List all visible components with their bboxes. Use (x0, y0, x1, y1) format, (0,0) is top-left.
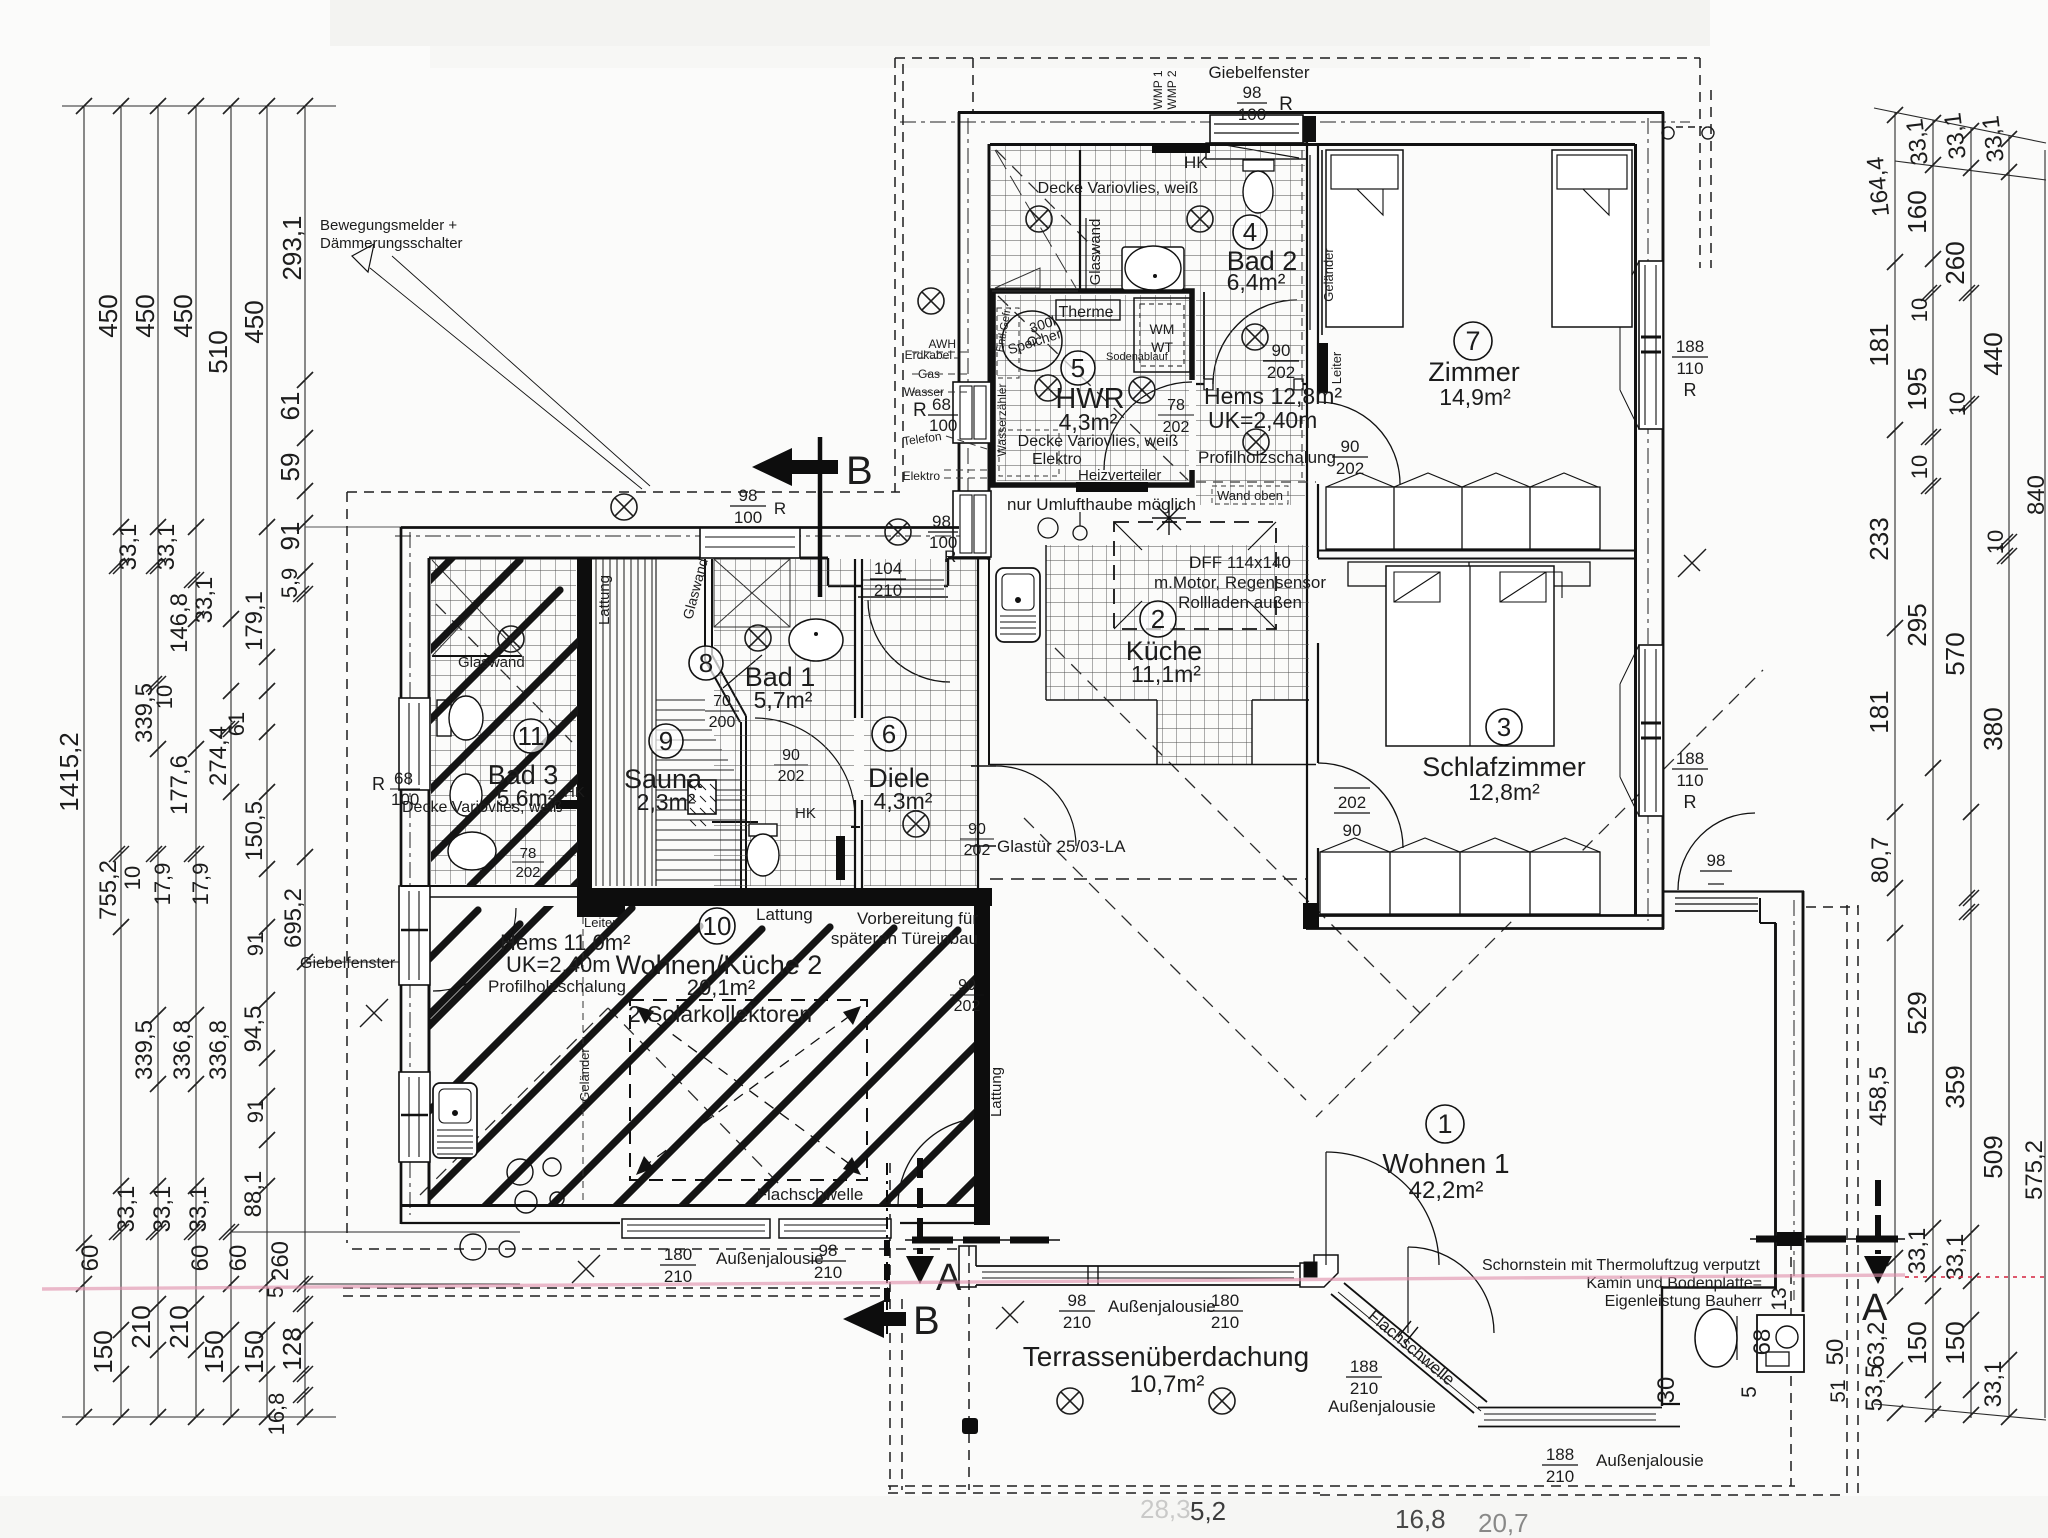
svg-text:WMP 2: WMP 2 (1165, 70, 1179, 109)
svg-text:380: 380 (1978, 707, 2008, 750)
svg-text:33,1: 33,1 (1904, 1228, 1931, 1275)
svg-text:450: 450 (168, 294, 198, 337)
svg-text:Außenjalousie: Außenjalousie (1108, 1297, 1216, 1316)
svg-text:210: 210 (874, 581, 902, 600)
svg-text:2 Solarkollektoren: 2 Solarkollektoren (628, 1001, 812, 1027)
svg-text:150: 150 (1940, 1321, 1970, 1364)
svg-text:88,1: 88,1 (240, 1171, 267, 1218)
svg-text:200: 200 (709, 714, 736, 731)
svg-text:A: A (936, 1257, 962, 1299)
svg-text:Lattung: Lattung (988, 1067, 1005, 1117)
svg-text:11,1m²: 11,1m² (1131, 661, 1201, 687)
svg-text:60: 60 (77, 1245, 104, 1272)
svg-text:146,8: 146,8 (166, 593, 193, 653)
svg-text:Schornstein mit Thermoluftzug: Schornstein mit Thermoluftzug verputzt (1482, 1257, 1761, 1274)
svg-text:695,2: 695,2 (280, 888, 307, 948)
svg-text:33,1: 33,1 (113, 1186, 140, 1233)
svg-text:104: 104 (874, 559, 902, 578)
svg-text:Schlafzimmer: Schlafzimmer (1422, 752, 1586, 782)
svg-text:210: 210 (126, 1305, 156, 1348)
svg-text:180: 180 (1211, 1291, 1239, 1310)
svg-text:181: 181 (1864, 323, 1894, 366)
svg-text:260: 260 (1940, 241, 1970, 284)
svg-text:68: 68 (1749, 1329, 1776, 1356)
svg-text:Wasserzähler: Wasserzähler (995, 384, 1009, 457)
svg-text:10,7m²: 10,7m² (1130, 1371, 1205, 1398)
svg-text:450: 450 (239, 300, 269, 343)
svg-text:90: 90 (1272, 341, 1291, 360)
svg-text:10: 10 (120, 866, 145, 890)
svg-text:33,1: 33,1 (1939, 111, 1971, 161)
svg-text:1: 1 (1437, 1109, 1452, 1139)
svg-text:61: 61 (224, 712, 249, 736)
svg-text:Geländer: Geländer (577, 1048, 592, 1102)
svg-text:Elektro: Elektro (903, 469, 941, 483)
svg-text:20,7: 20,7 (1478, 1508, 1529, 1538)
svg-text:359: 359 (1940, 1065, 1970, 1108)
svg-text:10: 10 (1907, 298, 1932, 322)
svg-text:m.Motor, Regensensor: m.Motor, Regensensor (1154, 573, 1326, 592)
svg-text:295: 295 (1902, 603, 1932, 646)
svg-text:Außenjalousie: Außenjalousie (1328, 1397, 1436, 1416)
svg-text:755,2: 755,2 (95, 860, 122, 920)
svg-text:R: R (1684, 792, 1697, 812)
svg-text:91: 91 (275, 522, 305, 551)
svg-text:336,8: 336,8 (205, 1020, 232, 1080)
svg-text:80,7: 80,7 (1867, 837, 1894, 884)
svg-text:33,1: 33,1 (185, 1186, 212, 1233)
svg-text:180: 180 (664, 1245, 692, 1264)
svg-text:Profilholzschalung: Profilholzschalung (1198, 448, 1336, 467)
svg-text:210: 210 (164, 1305, 194, 1348)
svg-text:12,8m²: 12,8m² (1468, 779, 1540, 805)
svg-text:Außenjalousie: Außenjalousie (1596, 1451, 1704, 1470)
svg-text:510: 510 (203, 330, 233, 373)
svg-text:51: 51 (1827, 1379, 1850, 1402)
svg-text:260: 260 (267, 1241, 294, 1281)
svg-text:150: 150 (1902, 1321, 1932, 1364)
svg-text:Glaswand: Glaswand (1087, 219, 1104, 286)
svg-text:Elektro: Elektro (1032, 451, 1082, 468)
svg-text:Dämmerungsschalter: Dämmerungsschalter (320, 235, 463, 252)
svg-text:Bewegungsmelder +: Bewegungsmelder + (320, 217, 457, 234)
svg-text:B: B (846, 449, 873, 493)
svg-text:90: 90 (782, 747, 800, 764)
svg-text:98: 98 (1707, 851, 1726, 870)
svg-text:nur Umlufthaube möglich: nur Umlufthaube möglich (1007, 495, 1196, 514)
svg-text:Heizverteiler: Heizverteiler (1078, 467, 1161, 484)
svg-text:202: 202 (515, 864, 540, 881)
svg-text:9: 9 (659, 726, 673, 756)
svg-text:6,4m²: 6,4m² (1227, 269, 1286, 295)
svg-text:339,5: 339,5 (131, 1020, 158, 1080)
svg-text:210: 210 (1063, 1313, 1091, 1332)
svg-text:59: 59 (275, 453, 305, 482)
svg-text:98: 98 (932, 512, 951, 531)
svg-text:42,2m²: 42,2m² (1409, 1177, 1484, 1204)
svg-text:293,1: 293,1 (277, 215, 307, 280)
svg-text:90: 90 (958, 977, 976, 994)
svg-text:HK: HK (564, 784, 585, 801)
svg-text:179,1: 179,1 (241, 591, 268, 651)
svg-text:R: R (913, 400, 927, 421)
svg-text:Flachschwelle: Flachschwelle (757, 1185, 864, 1204)
svg-text:10: 10 (152, 685, 177, 709)
svg-text:Terrassenüberdachung: Terrassenüberdachung (1023, 1341, 1309, 1372)
svg-text:78: 78 (520, 845, 537, 862)
svg-text:458,5: 458,5 (1865, 1066, 1892, 1126)
svg-text:11: 11 (518, 721, 545, 751)
svg-text:60: 60 (225, 1245, 252, 1272)
svg-text:5,9: 5,9 (277, 568, 302, 599)
svg-text:90: 90 (1341, 437, 1360, 456)
svg-text:94,5: 94,5 (240, 1006, 267, 1053)
svg-text:14,9m²: 14,9m² (1439, 384, 1511, 410)
svg-text:68: 68 (932, 395, 951, 414)
svg-text:202: 202 (1336, 459, 1364, 478)
svg-text:Erdkabel: Erdkabel (905, 348, 952, 362)
svg-text:840: 840 (2023, 475, 2048, 515)
svg-text:33,1: 33,1 (1942, 1234, 1969, 1281)
svg-text:5: 5 (1071, 353, 1085, 383)
svg-text:188: 188 (1546, 1445, 1574, 1464)
svg-text:150: 150 (88, 1330, 118, 1373)
svg-text:61: 61 (275, 392, 305, 421)
svg-text:195: 195 (1902, 367, 1932, 410)
svg-text:Vorbereitung für: Vorbereitung für (857, 909, 978, 928)
svg-text:110: 110 (1676, 771, 1703, 790)
svg-text:68: 68 (394, 769, 413, 788)
svg-text:7: 7 (1465, 326, 1480, 356)
svg-text:33,1: 33,1 (1977, 114, 2009, 164)
svg-text:4,3m²: 4,3m² (874, 788, 933, 814)
svg-text:Zimmer: Zimmer (1428, 357, 1519, 387)
svg-text:Glaswand: Glaswand (458, 654, 525, 671)
svg-text:70: 70 (713, 693, 731, 710)
svg-text:50: 50 (1822, 1339, 1849, 1366)
svg-text:Decke Variovlies, weiß: Decke Variovlies, weiß (402, 799, 563, 816)
svg-text:HK: HK (795, 805, 816, 822)
svg-text:90: 90 (1343, 821, 1362, 840)
svg-text:570: 570 (1940, 632, 1970, 675)
svg-text:90: 90 (968, 821, 986, 838)
svg-text:78: 78 (1167, 397, 1185, 414)
svg-text:98: 98 (739, 486, 758, 505)
svg-text:Giebelfenster: Giebelfenster (1208, 63, 1309, 82)
svg-text:20,1m²: 20,1m² (687, 975, 755, 1000)
svg-text:188: 188 (1676, 749, 1704, 768)
svg-text:100: 100 (929, 416, 957, 435)
svg-text:Hems 12,8m²: Hems 12,8m² (1204, 383, 1342, 409)
svg-text:Therme: Therme (1058, 304, 1113, 321)
svg-text:Außenjalousie: Außenjalousie (716, 1249, 824, 1268)
svg-text:33,1: 33,1 (1980, 1361, 2007, 1408)
svg-text:Leiter: Leiter (1329, 351, 1344, 384)
svg-text:210: 210 (814, 1263, 842, 1282)
svg-text:150: 150 (239, 1330, 269, 1373)
svg-text:Decke Variovlies, weiß: Decke Variovlies, weiß (1038, 180, 1199, 197)
svg-text:188: 188 (1676, 337, 1704, 356)
svg-text:336,8: 336,8 (169, 1020, 196, 1080)
svg-text:17,9: 17,9 (150, 863, 175, 906)
svg-text:33,1: 33,1 (191, 577, 218, 624)
svg-text:210: 210 (1211, 1313, 1239, 1332)
svg-text:160: 160 (1902, 190, 1932, 233)
svg-text:Rollladen außen: Rollladen außen (1178, 593, 1302, 612)
svg-text:188: 188 (1350, 1357, 1378, 1376)
svg-text:28,3: 28,3 (1140, 1494, 1191, 1524)
svg-text:HK: HK (1184, 153, 1208, 172)
svg-text:R: R (1684, 380, 1697, 400)
svg-text:1415,2: 1415,2 (54, 732, 84, 812)
svg-text:450: 450 (130, 294, 160, 337)
svg-text:DFF 114x140: DFF 114x140 (1189, 553, 1291, 572)
svg-text:60: 60 (187, 1245, 214, 1272)
svg-text:Lattung: Lattung (596, 575, 613, 625)
svg-text:450: 450 (93, 294, 123, 337)
svg-text:Eigenleistung Bauherr: Eigenleistung Bauherr (1605, 1293, 1763, 1310)
svg-text:110: 110 (1676, 359, 1703, 378)
svg-text:4: 4 (1243, 217, 1257, 247)
svg-text:202: 202 (1338, 793, 1366, 812)
svg-text:6: 6 (882, 719, 896, 749)
svg-text:177,6: 177,6 (166, 755, 193, 815)
svg-text:210: 210 (1350, 1379, 1378, 1398)
svg-text:91: 91 (243, 932, 268, 956)
svg-text:181: 181 (1864, 690, 1894, 733)
svg-text:Wohnen 1: Wohnen 1 (1382, 1148, 1509, 1179)
svg-text:5,2: 5,2 (1190, 1496, 1226, 1526)
svg-text:R: R (1279, 94, 1293, 115)
svg-text:späteren Türeinbau: späteren Türeinbau (831, 929, 978, 948)
svg-text:4,3m²: 4,3m² (1059, 409, 1118, 435)
svg-text:10: 10 (1945, 392, 1970, 416)
svg-text:16,8: 16,8 (1395, 1504, 1446, 1534)
svg-text:529: 529 (1902, 991, 1932, 1034)
svg-text:5: 5 (1738, 1386, 1761, 1398)
svg-text:2: 2 (1151, 604, 1165, 634)
svg-text:Geländer: Geländer (1321, 248, 1336, 302)
svg-text:98: 98 (1068, 1291, 1087, 1310)
svg-text:8: 8 (699, 648, 713, 678)
svg-text:WM: WM (1150, 321, 1175, 337)
svg-text:98: 98 (1243, 83, 1262, 102)
svg-text:Lattung: Lattung (756, 905, 813, 924)
svg-text:10: 10 (703, 911, 732, 941)
svg-text:91: 91 (243, 1099, 268, 1123)
svg-text:98: 98 (819, 1241, 838, 1260)
svg-text:UK=2,40m: UK=2,40m (506, 952, 611, 977)
svg-text:202: 202 (964, 842, 991, 859)
svg-text:R: R (372, 774, 385, 794)
svg-text:202: 202 (778, 768, 805, 785)
svg-text:5,7m²: 5,7m² (754, 687, 813, 713)
svg-text:R: R (774, 499, 786, 518)
svg-text:128: 128 (277, 1327, 307, 1370)
svg-text:202: 202 (1267, 363, 1295, 382)
svg-text:440: 440 (1978, 332, 2008, 375)
svg-text:202: 202 (1163, 419, 1190, 436)
svg-text:Wand oben: Wand oben (1217, 488, 1283, 503)
svg-text:33,1: 33,1 (149, 1186, 176, 1233)
svg-text:Leiter: Leiter (584, 915, 617, 930)
svg-text:33,1: 33,1 (153, 524, 180, 571)
svg-text:B: B (913, 1299, 940, 1343)
svg-text:575,2: 575,2 (2021, 1140, 2048, 1200)
svg-text:202: 202 (954, 998, 981, 1015)
svg-text:233: 233 (1864, 517, 1894, 560)
svg-text:100: 100 (1238, 105, 1266, 124)
svg-text:210: 210 (1546, 1467, 1574, 1486)
svg-text:Glastür 25/03-LA: Glastür 25/03-LA (997, 837, 1126, 856)
svg-text:R: R (944, 547, 956, 566)
svg-text:33,1: 33,1 (115, 524, 142, 571)
svg-text:2,3m²: 2,3m² (637, 789, 696, 815)
svg-text:16,8: 16,8 (264, 1393, 289, 1436)
svg-text:Decke Variovlies, weiß: Decke Variovlies, weiß (1018, 433, 1179, 450)
svg-text:509: 509 (1978, 1135, 2008, 1178)
svg-text:A: A (1862, 1287, 1888, 1329)
svg-text:10: 10 (1983, 530, 2008, 554)
svg-text:100: 100 (734, 508, 762, 527)
svg-text:UK=2,40m: UK=2,40m (1208, 407, 1317, 433)
svg-text:150: 150 (199, 1330, 229, 1373)
svg-text:Sodenablauf: Sodenablauf (1106, 351, 1169, 363)
svg-text:33,1: 33,1 (1901, 117, 1933, 167)
svg-text:30: 30 (1653, 1377, 1680, 1404)
svg-text:150,5: 150,5 (241, 801, 268, 861)
svg-text:3: 3 (1497, 712, 1511, 742)
svg-text:17,9: 17,9 (188, 863, 213, 906)
svg-text:13: 13 (1768, 1287, 1791, 1310)
svg-text:10: 10 (1907, 455, 1932, 479)
svg-text:53,5: 53,5 (1861, 1365, 1888, 1412)
svg-text:WMP 1: WMP 1 (1151, 70, 1165, 109)
svg-text:Profilholzschalung: Profilholzschalung (488, 977, 626, 996)
svg-text:Giebelfenster: Giebelfenster (300, 955, 396, 972)
